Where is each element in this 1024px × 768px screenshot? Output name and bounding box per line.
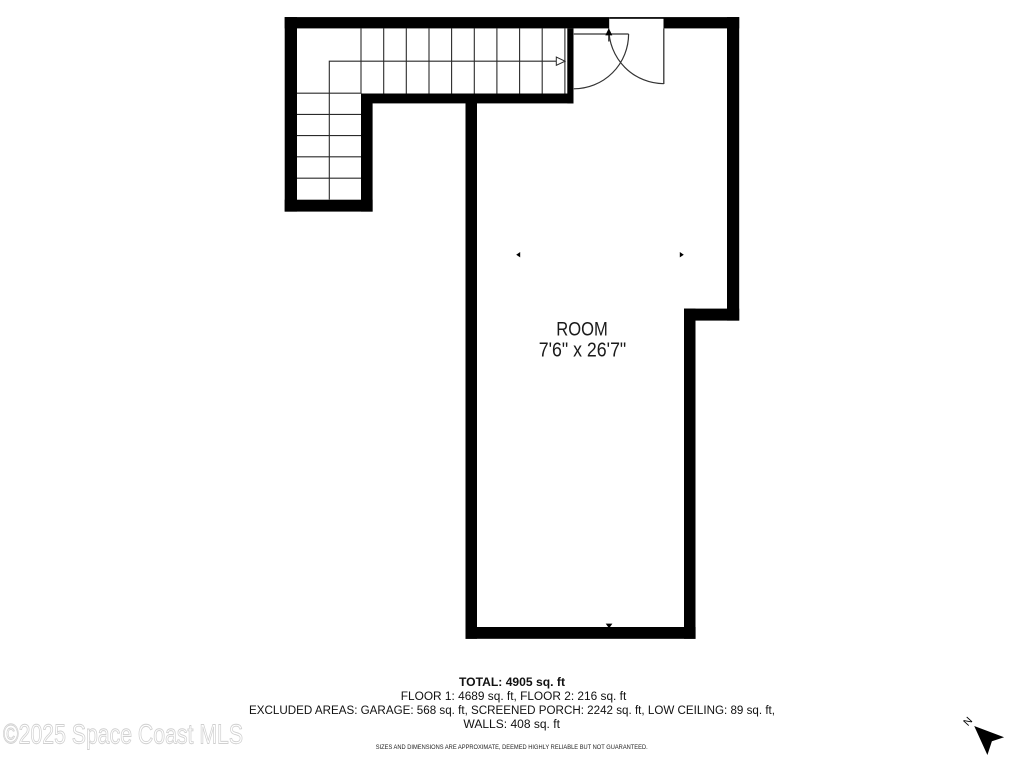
svg-text:SIZES AND DIMENSIONS ARE APPRO: SIZES AND DIMENSIONS ARE APPROXIMATE, DE… <box>376 744 648 751</box>
svg-text:WALLS: 408 sq. ft: WALLS: 408 sq. ft <box>463 719 560 731</box>
svg-text:©2025 Space Coast MLS: ©2025 Space Coast MLS <box>3 719 243 750</box>
svg-text:7'6" x 26'7": 7'6" x 26'7" <box>539 340 627 362</box>
svg-text:ROOM: ROOM <box>556 319 608 341</box>
svg-text:TOTAL: 4905 sq. ft: TOTAL: 4905 sq. ft <box>459 677 565 689</box>
svg-text:FLOOR 1: 4689 sq. ft, FLOOR 2:: FLOOR 1: 4689 sq. ft, FLOOR 2: 216 sq. f… <box>401 691 627 703</box>
svg-text:EXCLUDED AREAS: GARAGE: 568 sq: EXCLUDED AREAS: GARAGE: 568 sq. ft, SCRE… <box>249 705 775 717</box>
svg-text:N: N <box>961 715 975 729</box>
